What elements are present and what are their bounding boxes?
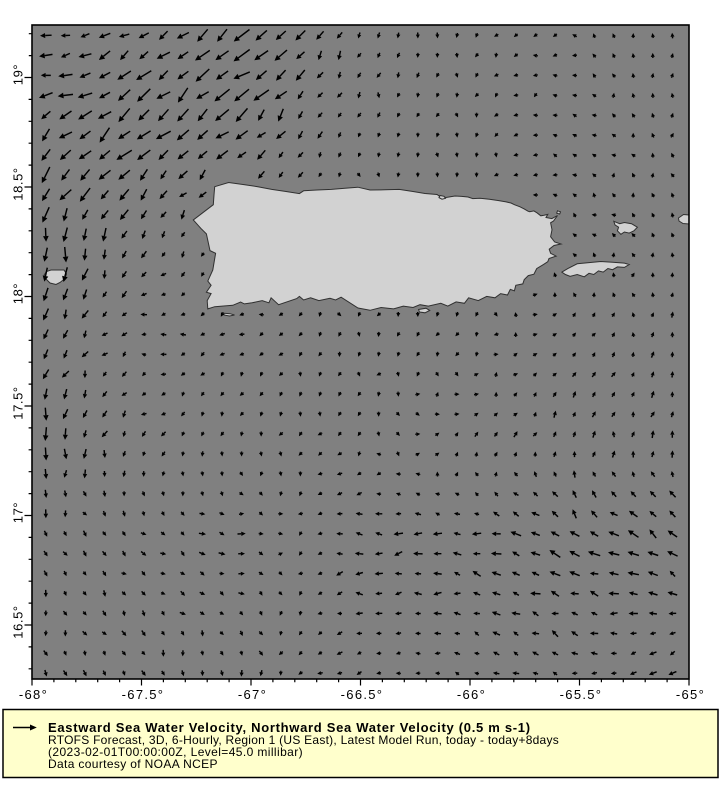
svg-text:-67.5°: -67.5° <box>122 687 165 702</box>
svg-text:Data courtesy of NOAA NCEP: Data courtesy of NOAA NCEP <box>48 757 218 771</box>
svg-text:-66°: -66° <box>457 687 486 702</box>
svg-text:-68°: -68° <box>19 687 48 702</box>
svg-text:17°: 17° <box>11 502 26 523</box>
svg-text:16.5°: 16.5° <box>11 605 26 639</box>
svg-text:-65°: -65° <box>676 687 705 702</box>
svg-text:19°: 19° <box>11 64 26 85</box>
svg-text:17.5°: 17.5° <box>11 386 26 420</box>
svg-text:-67°: -67° <box>238 687 267 702</box>
svg-text:18°: 18° <box>11 283 26 304</box>
svg-text:18.5°: 18.5° <box>11 167 26 201</box>
svg-text:-66.5°: -66.5° <box>341 687 384 702</box>
svg-text:-65.5°: -65.5° <box>560 687 603 702</box>
